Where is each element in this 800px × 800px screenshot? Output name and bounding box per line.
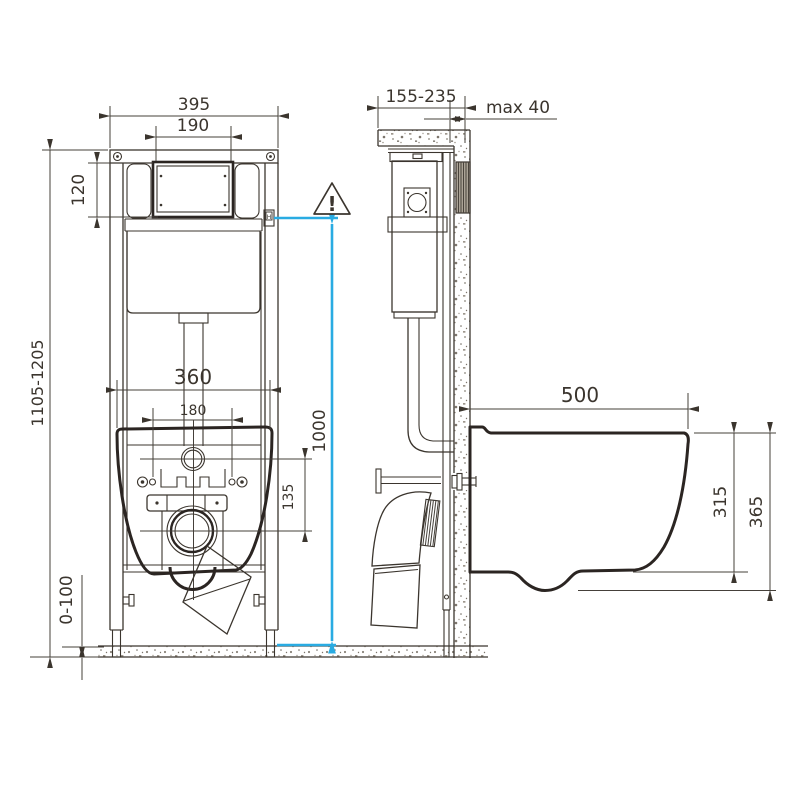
dim-395-label: 395 <box>178 95 210 115</box>
dim-0-100-label: 0-100 <box>57 575 77 624</box>
flush-pipe-cap <box>179 313 208 323</box>
technical-drawing-page: H <box>0 0 800 800</box>
left-adjuster-bolt <box>123 597 129 604</box>
right-adjuster-bolt <box>259 597 265 604</box>
dim-360-label: 360 <box>174 365 212 389</box>
dim-plate-height: 120 <box>69 163 158 217</box>
installation-drawing: H <box>0 0 800 800</box>
dim-floor-adjust: 0-100 <box>57 575 104 680</box>
wall-bracket <box>376 469 441 493</box>
flush-plate-side <box>456 162 470 213</box>
warning-triangle-icon: ! <box>314 183 350 216</box>
dim-1105-1205-label: 1105-1205 <box>28 339 47 426</box>
dim-1000-label: 1000 <box>310 409 330 452</box>
drain-pipe-lower <box>371 565 420 628</box>
dim-500-label: 500 <box>561 383 599 407</box>
dim-315-label: 315 <box>711 486 731 518</box>
support-band <box>388 217 447 232</box>
flush-pipe-side <box>408 318 454 452</box>
front-view: H <box>28 95 312 680</box>
dim-180-label: 180 <box>180 403 207 419</box>
through-wall-bolt <box>452 473 477 490</box>
warning-mark-label: ! <box>327 192 336 216</box>
dim-155-235-label: 155-235 <box>385 87 456 107</box>
dim-plate-width: 190 <box>156 116 231 161</box>
flush-plate-front <box>127 162 259 218</box>
frame-rail-side <box>388 149 454 657</box>
dim-190-label: 190 <box>177 116 209 136</box>
cistern-side <box>388 161 447 318</box>
toilet-bowl-side: 500 315 365 <box>470 383 776 591</box>
dim-bowl-depth: 500 <box>470 383 688 429</box>
ceiling-section <box>378 130 470 146</box>
dim-135-label: 135 <box>281 484 297 511</box>
dim-hole-spacing: 180 <box>153 403 232 477</box>
floor-section <box>30 646 488 657</box>
dim-max-40-label: max 40 <box>486 98 550 118</box>
dim-120-label: 120 <box>69 174 89 206</box>
side-view: 155-235 max 40 <box>371 87 557 658</box>
dim-365-label: 365 <box>747 496 767 528</box>
outlet-plate <box>147 495 227 511</box>
drain-elbow-side <box>371 492 440 628</box>
plate-mark-label: H <box>267 214 272 221</box>
